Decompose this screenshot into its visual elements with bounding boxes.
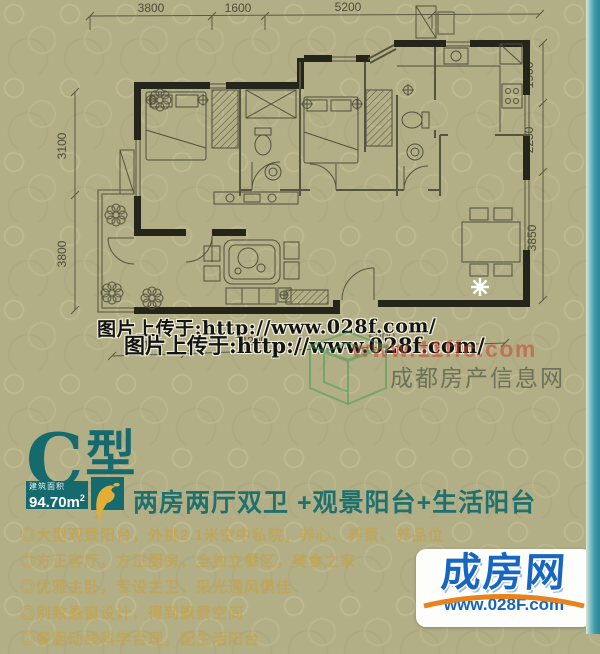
- chengfang-brand-text: 成房网: [414, 551, 593, 595]
- feature-item: ◎别致悬窗设计，得到飘景空间: [20, 602, 450, 623]
- dim-left-1: 3100: [55, 132, 69, 159]
- dim-top-3: 5200: [335, 0, 362, 14]
- feature-item: ◎餐厨动线科学合理，配生活阳台: [20, 628, 450, 649]
- bird-logo: [91, 477, 124, 510]
- bird-icon: [91, 477, 124, 525]
- area-box: 建筑面积 94.70m2: [26, 481, 88, 509]
- area-superscript: 2: [80, 493, 85, 503]
- dim-right-3: 3850: [525, 224, 539, 251]
- scan-edge-strip: [586, 0, 600, 634]
- service-balcony: [416, 6, 454, 38]
- cd-site-name: 成都房产信息网: [390, 359, 565, 393]
- feature-list: ◎大型观景阳台，外挑2.1米空中私院，养心、养景、养品位 ◎方正客厅，方正厨房，…: [20, 524, 450, 654]
- dim-top-1: 3800: [138, 1, 165, 15]
- feature-item: ◎优雅主卧，专设主卫，采光通风俱佳: [20, 576, 450, 597]
- dim-top-2: 1600: [225, 1, 252, 15]
- feature-item: ◎大型观景阳台，外挑2.1米空中私院，养心、养景、养品位: [20, 524, 450, 545]
- decor-fan-icon: [471, 278, 489, 296]
- area-caption: 建筑面积: [29, 482, 88, 491]
- unit-type-word: 型: [85, 424, 135, 483]
- unit-headline: 两房两厅双卫 +观景阳台+生活阳台: [133, 483, 536, 519]
- feature-item: ◎方正客厅，方正厨房，全独立餐区，美食之家: [20, 550, 450, 571]
- walls-thick: [134, 40, 530, 314]
- chengfang-logo-card: 成房网 www.028F.com: [416, 549, 592, 627]
- area-value: 94.70m2: [29, 491, 88, 510]
- orange-swoosh-icon: [420, 593, 588, 609]
- dim-left-2: 3800: [55, 240, 69, 267]
